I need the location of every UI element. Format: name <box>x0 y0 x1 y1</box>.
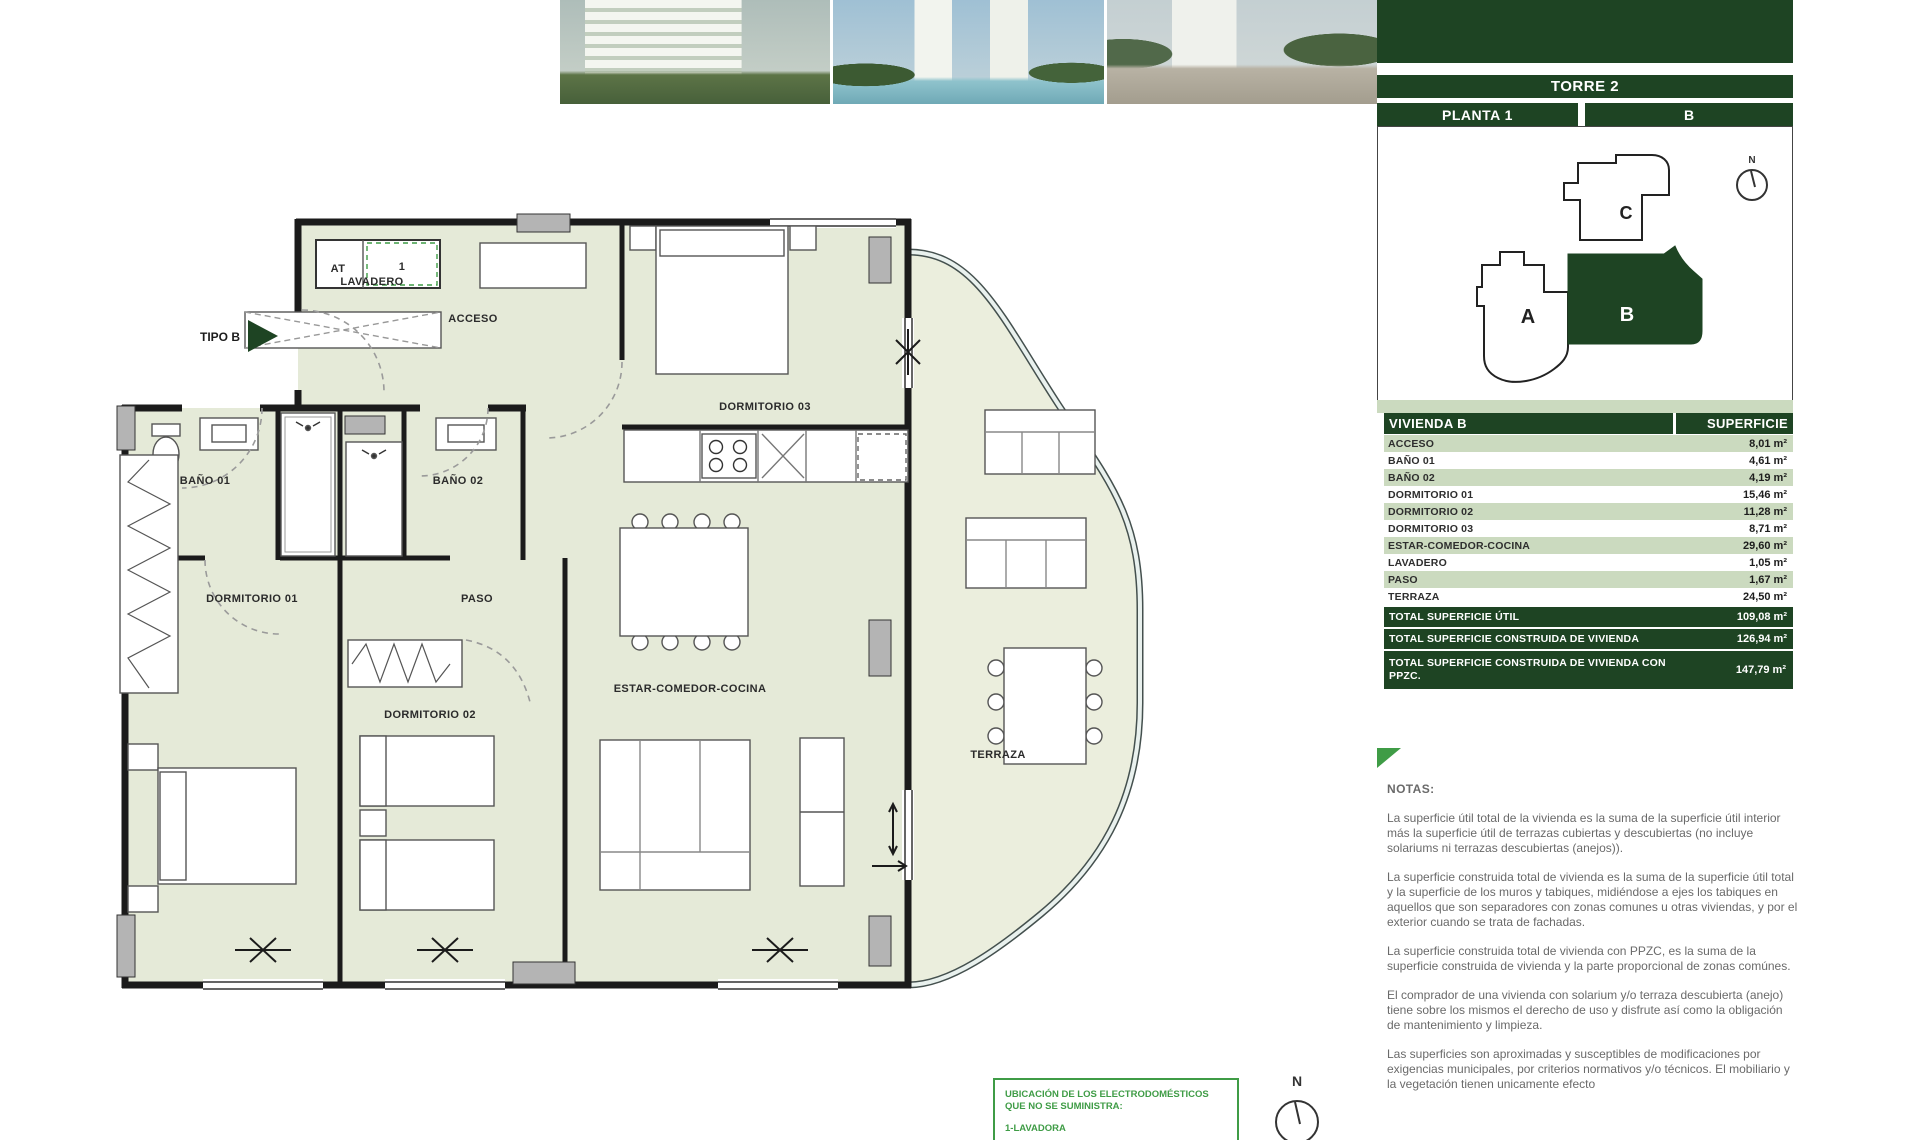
total-ppzc-row: TOTAL SUPERFICIE CONSTRUIDA DE VIVIENDA … <box>1384 651 1793 689</box>
label-terraza: TERRAZA <box>970 749 1025 761</box>
row-value: 29,60 m² <box>1675 540 1793 552</box>
table-row: ESTAR-COMEDOR-COCINA29,60 m² <box>1384 537 1793 554</box>
row-label: ESTAR-COMEDOR-COCINA <box>1384 540 1675 552</box>
compass-key-n-label: N <box>1748 155 1755 166</box>
label-estar: ESTAR-COMEDOR-COCINA <box>614 683 767 695</box>
total-label: TOTAL SUPERFICIE CONSTRUIDA DE VIVIENDA … <box>1384 657 1674 683</box>
row-value: 4,19 m² <box>1675 472 1793 484</box>
key-unit-c-shape <box>1564 155 1669 240</box>
row-value: 4,61 m² <box>1675 455 1793 467</box>
planta-label: PLANTA 1 <box>1442 107 1513 123</box>
notes-section: NOTAS: La superficie útil total de la vi… <box>1387 748 1799 1092</box>
appliances-note-line2: 1-LAVADORA <box>1005 1123 1227 1135</box>
table-row: LAVADERO1,05 m² <box>1384 554 1793 571</box>
notes-paragraph: La superficie construida total de vivien… <box>1387 870 1799 930</box>
label-acceso: ACCESO <box>448 313 498 325</box>
planta-bar: PLANTA 1 <box>1377 103 1578 126</box>
total-util-row: TOTAL SUPERFICIE ÚTIL 109,08 m² <box>1384 607 1793 627</box>
total-value: 126,94 m² <box>1675 633 1793 645</box>
row-label: BAÑO 02 <box>1384 472 1675 484</box>
surface-table-header: VIVIENDA B SUPERFICIE <box>1384 413 1793 434</box>
row-value: 1,67 m² <box>1675 574 1793 586</box>
unit-letter-label: B <box>1684 107 1694 123</box>
key-unit-b-label: B <box>1620 304 1634 326</box>
table-row: TERRAZA24,50 m² <box>1384 588 1793 605</box>
unit-letter-bar: B <box>1585 103 1793 126</box>
row-value: 11,28 m² <box>1675 506 1793 518</box>
surface-table: VIVIENDA B SUPERFICIE ACCESO8,01 m² BAÑO… <box>1384 413 1793 689</box>
label-at: AT <box>331 263 346 275</box>
row-label: BAÑO 01 <box>1384 455 1675 467</box>
torre-bar: TORRE 2 <box>1377 75 1793 98</box>
total-construida-row: TOTAL SUPERFICIE CONSTRUIDA DE VIVIENDA … <box>1384 629 1793 649</box>
label-unit-number: 1 <box>399 261 406 273</box>
compass-n-label: N <box>1292 1073 1302 1089</box>
table-row: DORMITORIO 0115,46 m² <box>1384 486 1793 503</box>
total-label: TOTAL SUPERFICIE ÚTIL <box>1384 611 1675 623</box>
key-plan-box: A B C N <box>1377 126 1793 401</box>
key-plan: A B C N <box>1378 127 1792 400</box>
total-value: 147,79 m² <box>1674 664 1792 676</box>
label-dorm02: DORMITORIO 02 <box>384 709 476 721</box>
row-label: DORMITORIO 01 <box>1384 489 1675 501</box>
table-row: BAÑO 024,19 m² <box>1384 469 1793 486</box>
key-unit-c-label: C <box>1620 203 1633 223</box>
floor-plan: TIPO B AT LAVADERO 1 ACCESO BAÑO 01 BAÑO… <box>0 0 1400 1140</box>
row-label: LAVADERO <box>1384 557 1675 569</box>
table-row: PASO1,67 m² <box>1384 571 1793 588</box>
notes-paragraph: Las superficies son aproximadas y suscep… <box>1387 1047 1799 1092</box>
label-dorm03: DORMITORIO 03 <box>719 401 811 413</box>
row-label: PASO <box>1384 574 1675 586</box>
notes-paragraph: La superficie útil total de la vivienda … <box>1387 811 1799 856</box>
row-value: 8,01 m² <box>1675 438 1793 450</box>
table-row: BAÑO 014,61 m² <box>1384 452 1793 469</box>
torre-label: TORRE 2 <box>1551 78 1619 95</box>
plan-sheet-page: TIPO B AT LAVADERO 1 ACCESO BAÑO 01 BAÑO… <box>0 0 1920 1140</box>
compass-bottom: N <box>1276 1073 1318 1140</box>
row-label: TERRAZA <box>1384 591 1675 603</box>
row-value: 24,50 m² <box>1675 591 1793 603</box>
table-row: ACCESO8,01 m² <box>1384 435 1793 452</box>
label-lavadero: LAVADERO <box>340 276 403 288</box>
row-value: 15,46 m² <box>1675 489 1793 501</box>
compass-key-plan: N <box>1737 155 1767 200</box>
key-unit-b-shape <box>1568 246 1702 344</box>
notes-title: NOTAS: <box>1387 782 1799 797</box>
appliances-note-box: UBICACIÓN DE LOS ELECTRODOMÉSTICOS QUE N… <box>993 1078 1239 1140</box>
row-value: 8,71 m² <box>1675 523 1793 535</box>
panel-top-band <box>1377 0 1793 63</box>
table-header-surface: SUPERFICIE <box>1676 413 1793 434</box>
tipo-b-label: TIPO B <box>200 330 240 344</box>
notes-paragraph: La superficie construida total de vivien… <box>1387 944 1799 974</box>
notes-triangle-icon <box>1377 748 1401 768</box>
row-value: 1,05 m² <box>1675 557 1793 569</box>
label-bano02: BAÑO 02 <box>433 474 483 487</box>
label-paso: PASO <box>461 593 493 605</box>
key-unit-a-label: A <box>1521 306 1535 328</box>
label-dorm01: DORMITORIO 01 <box>206 593 298 605</box>
row-label: DORMITORIO 03 <box>1384 523 1675 535</box>
table-row: DORMITORIO 038,71 m² <box>1384 520 1793 537</box>
notes-paragraph: El comprador de una vivienda con solariu… <box>1387 988 1799 1033</box>
row-label: DORMITORIO 02 <box>1384 506 1675 518</box>
table-header-name: VIVIENDA B <box>1384 413 1673 434</box>
label-bano01: BAÑO 01 <box>180 474 230 487</box>
appliances-note-line1: UBICACIÓN DE LOS ELECTRODOMÉSTICOS QUE N… <box>1005 1089 1227 1114</box>
total-label: TOTAL SUPERFICIE CONSTRUIDA DE VIVIENDA <box>1384 633 1675 645</box>
total-value: 109,08 m² <box>1675 611 1793 623</box>
row-label: ACCESO <box>1384 438 1675 450</box>
panel-stripe <box>1377 400 1793 413</box>
table-row: DORMITORIO 0211,28 m² <box>1384 503 1793 520</box>
